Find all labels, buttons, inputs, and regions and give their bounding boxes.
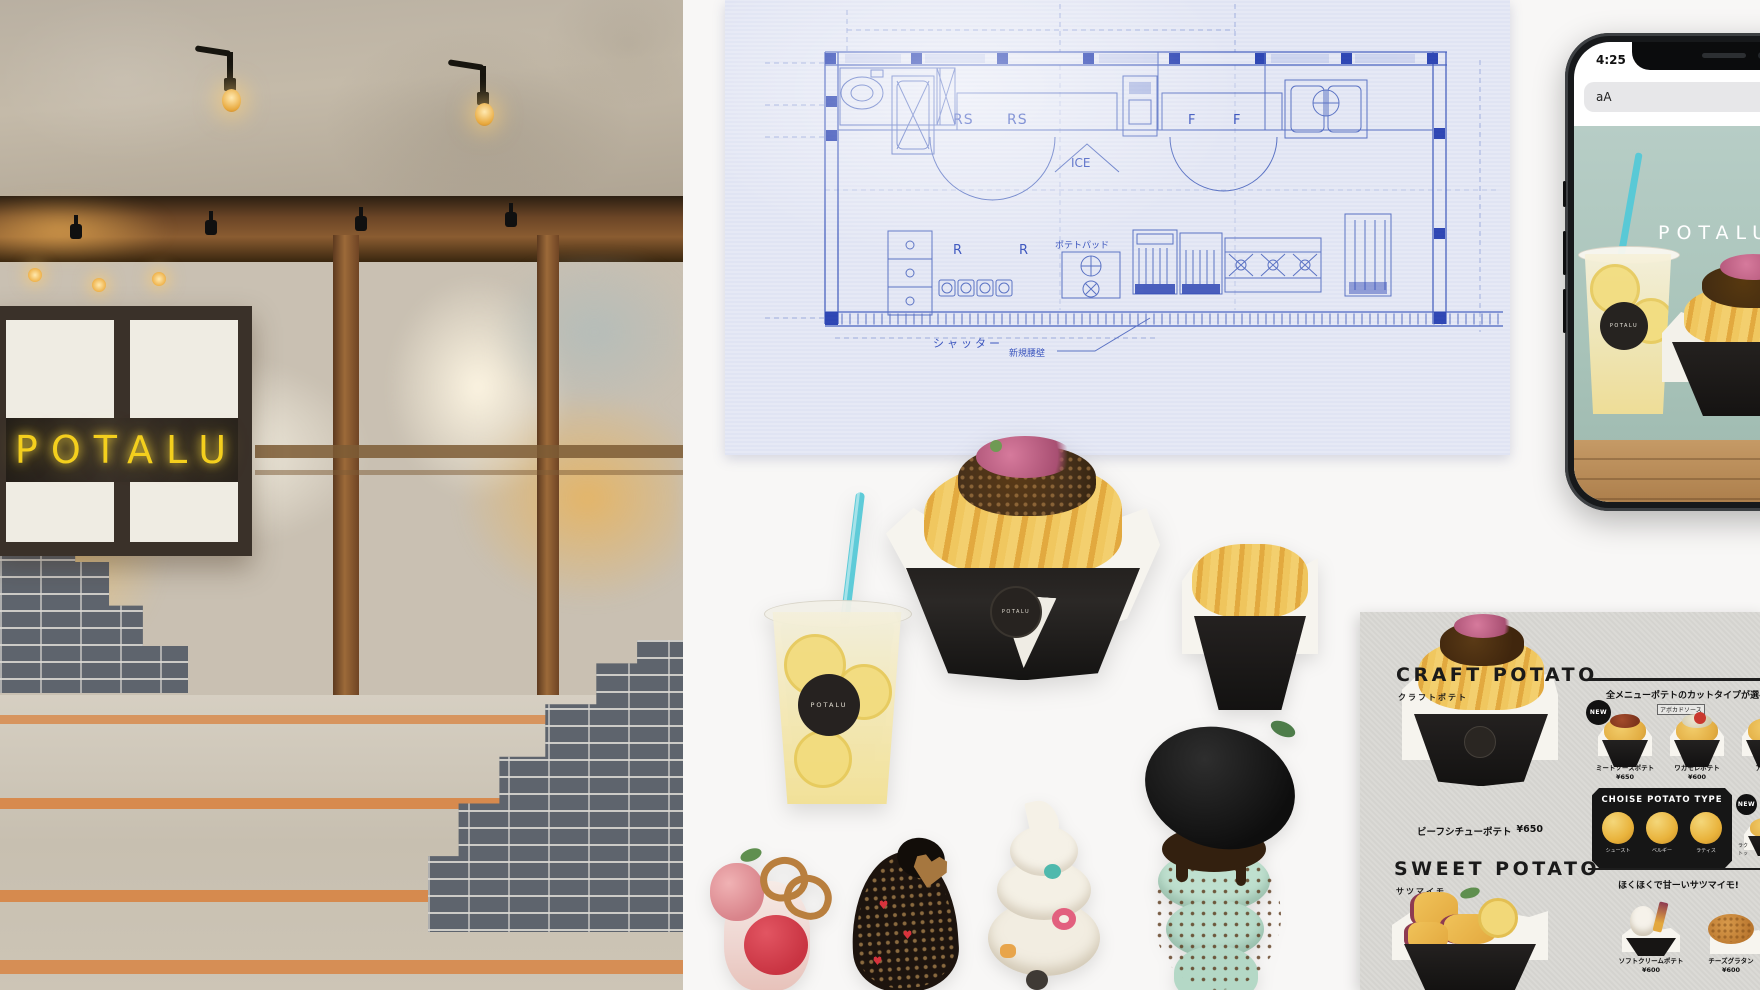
menu-item-name: ミートソースポテト <box>1584 762 1666 772</box>
mint-leaf-icon <box>1459 885 1481 900</box>
meat-sauce-topping <box>1610 714 1640 728</box>
string-light-icon <box>152 272 166 286</box>
cereal-topping-icon <box>1026 970 1048 990</box>
menu-item-price: ¥600 <box>1604 966 1698 974</box>
design-collage: POTALU <box>0 0 1760 990</box>
plan-label-f1: F <box>1188 113 1195 128</box>
cereal-topping-icon <box>1044 864 1061 879</box>
menu-item-photo <box>1668 710 1726 768</box>
floor-stripe <box>0 960 683 974</box>
dessert-strawberry-pretzel <box>712 845 822 990</box>
potato-type-label: ベルギー <box>1642 847 1682 854</box>
menu-item-price: ¥600 <box>1662 773 1732 781</box>
wood-post <box>333 235 359 717</box>
wood-post <box>537 235 559 703</box>
dessert-mint-choco <box>1130 722 1305 990</box>
divider <box>1588 868 1760 870</box>
phone-hero-photo: POTALU POTALU <box>1574 126 1760 502</box>
garnish <box>976 436 1074 478</box>
plain-fries-product-photo <box>1182 538 1318 714</box>
gratin-croquette <box>1708 914 1754 944</box>
menu-item-name: チーズグラタン <box>1698 955 1760 965</box>
black-tray <box>1626 938 1676 956</box>
menu-item-price: ¥650 <box>1584 773 1666 781</box>
mint-leaf-icon <box>739 846 764 865</box>
track-light-icon <box>355 216 367 231</box>
track-light-icon <box>505 212 517 227</box>
potato-type-lattice-icon <box>1690 812 1722 844</box>
sign-band: POTALU <box>6 418 238 482</box>
wall-lamp-icon <box>438 62 498 134</box>
phone-notch <box>1632 42 1760 70</box>
sweet-potato-heading: SWEET POTATO <box>1394 858 1600 880</box>
plan-label-new-wall: 新規腰壁 <box>1009 347 1045 359</box>
potato-type-belgian-icon <box>1646 812 1678 844</box>
choise-potato-type-box: CHOISE POTATO TYPE シュースト ベルギー ラティス <box>1592 788 1732 868</box>
fries-tray-photo <box>1662 276 1760 416</box>
plan-label-rs2: RS <box>1007 112 1028 128</box>
cut-type-note: 全メニューポテトのカットタイプが選べる! <box>1606 688 1760 701</box>
sign-neon-text: POTALU <box>5 428 239 472</box>
menu-item-name: ソフトクリームポテト <box>1604 955 1698 965</box>
tray-brand-logo <box>1464 726 1496 758</box>
potalu-signboard: POTALU <box>0 306 252 556</box>
sweet-note: ほくほくで甘ーいサツマイモ! <box>1618 878 1739 891</box>
beef-stew-potato-photo <box>1388 614 1573 819</box>
phone-volume-button <box>1563 231 1566 275</box>
soft-cream-swirl <box>1630 906 1656 936</box>
menu-item-photo <box>1596 710 1654 768</box>
lemon-slice-icon <box>794 730 852 788</box>
fries <box>1192 544 1308 618</box>
phone-site-title: POTALU <box>1658 222 1760 244</box>
cereal-topping-icon <box>1052 908 1076 930</box>
potato-type-label: ラティス <box>1686 847 1726 854</box>
dessert-choco-crunch <box>845 838 970 990</box>
menu-card: ビーフシチューポテト ¥650 CRAFT POTATO クラフトポテト 全メニ… <box>1360 612 1760 990</box>
craft-fries-product-photo: POTALU <box>878 446 1170 696</box>
black-tray <box>1404 944 1536 990</box>
sweet-potato-stick <box>1653 901 1669 932</box>
phone-mockup: 4:25 aA POTALU POTALU <box>1565 33 1760 511</box>
string-light-icon <box>28 268 42 282</box>
speaker-slit-icon <box>1702 53 1746 58</box>
lemon-slice-icon <box>1478 898 1518 938</box>
potato-type-label: シュースト <box>1598 847 1638 854</box>
menu-item-name: ワカモレポテト <box>1662 762 1732 772</box>
craft-potato-heading: CRAFT POTATO <box>1396 664 1598 686</box>
dessert-vanilla-swirl <box>988 808 1103 990</box>
tomato-topping <box>1694 712 1706 724</box>
plan-label-rs1: RS <box>953 112 974 128</box>
menu-item-price: ¥600 <box>1698 966 1760 974</box>
blueprint-sheet: RS RS ICE F F R R ポテトパッド シャッター 新規腰壁 <box>725 0 1510 455</box>
plan-label-r2: R <box>1019 243 1028 258</box>
rail <box>255 470 683 475</box>
lemonade-logo-text: POTALU <box>810 701 847 709</box>
cup-brand-logo: POTALU <box>1600 302 1648 350</box>
garnish <box>1454 614 1512 638</box>
craft-potato-subheading: クラフトポテト <box>1398 692 1468 703</box>
reader-aa-button[interactable]: aA <box>1596 90 1612 104</box>
potato-type-shoestring-icon <box>1602 812 1634 844</box>
track-light-icon <box>205 220 217 235</box>
divider <box>1588 678 1760 681</box>
track-light-icon <box>70 224 82 239</box>
cereal-topping-icon <box>1000 944 1016 958</box>
menu-item-name: アラ <box>1742 762 1760 772</box>
menu-item-photo <box>1740 710 1760 768</box>
black-tray <box>1194 616 1306 710</box>
mint-leaf-icon <box>1268 717 1297 740</box>
side-item-text: トッ <box>1738 850 1748 857</box>
cup-logo-text: POTALU <box>1610 323 1638 329</box>
storefront-photo: POTALU <box>0 0 683 990</box>
rail <box>255 445 683 458</box>
plan-label-shutter: シャッター <box>933 337 1003 350</box>
menu-item-label: ビーフシチューポテト ¥650 <box>1390 824 1570 838</box>
plan-label-r1: R <box>953 243 962 258</box>
plan-label-potato-pad: ポテトパッド <box>1055 240 1109 251</box>
floor-plan-drawing: RS RS ICE F F R R ポテトパッド シャッター 新規腰壁 <box>725 0 1510 455</box>
concrete-wall <box>0 0 683 225</box>
plan-label-f2: F <box>1233 113 1240 128</box>
string-light-icon <box>92 278 106 292</box>
wood-table <box>1574 440 1760 502</box>
sweet-potato-photo <box>1382 892 1560 990</box>
item-name: ビーフシチューポテト <box>1417 824 1511 838</box>
plan-label-ice: ICE <box>1071 156 1091 170</box>
item-price: ¥650 <box>1516 824 1542 838</box>
status-time: 4:25 <box>1596 53 1626 67</box>
browser-address-bar[interactable]: aA <box>1584 82 1760 112</box>
soft-cream-potato-photo <box>1616 904 1686 956</box>
red-macaron <box>744 915 808 975</box>
phone-volume-button <box>1563 289 1566 333</box>
wall-lamp-icon <box>185 48 245 120</box>
lemonade-brand-logo: POTALU <box>798 674 860 736</box>
cheese-gratin-photo <box>1704 906 1760 958</box>
side-item-text: ラク <box>1738 842 1748 849</box>
choise-box-title: CHOISE POTATO TYPE <box>1592 795 1732 805</box>
fries-brand-logo: POTALU <box>990 586 1042 638</box>
fries-logo-text: POTALU <box>1002 609 1030 615</box>
phone-mute-switch <box>1563 181 1566 207</box>
strawberry-icecream <box>710 863 764 921</box>
phone-screen: 4:25 aA POTALU POTALU <box>1574 42 1760 502</box>
